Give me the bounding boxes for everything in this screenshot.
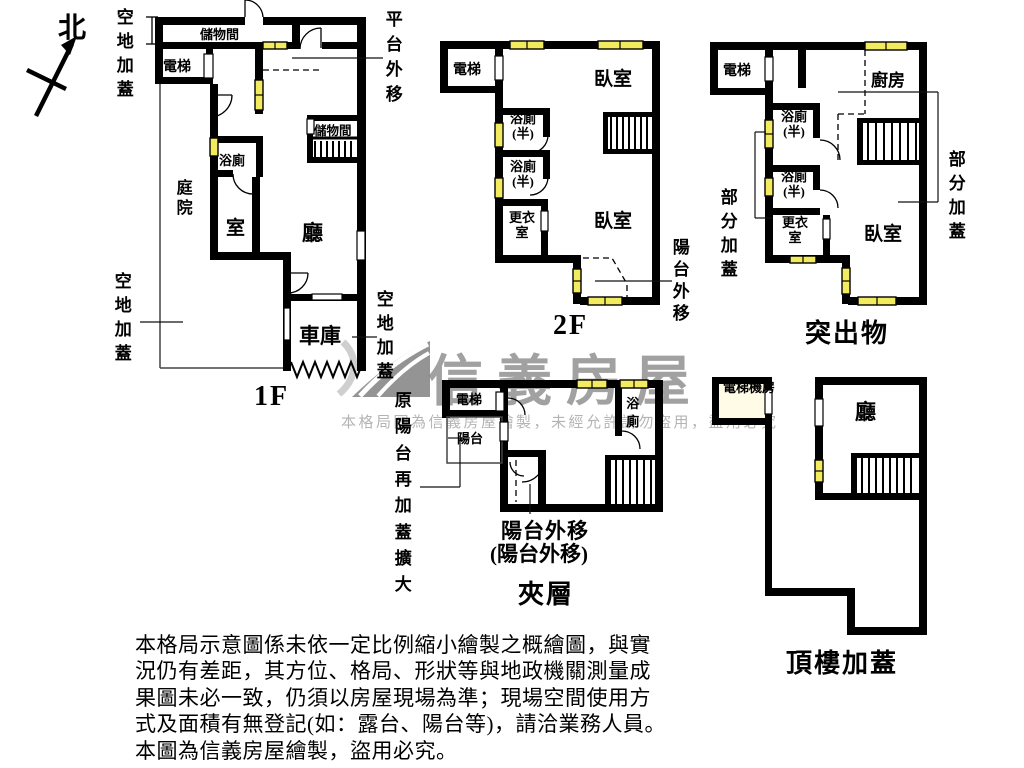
disclaimer-line: 況仍有差距，其方位、格局、形狀等與地政機關測量成 — [135, 658, 670, 684]
floorplan-2f — [440, 41, 672, 305]
plan-title-rooftop: 頂樓加蓋 — [786, 643, 898, 680]
annotation-original-balcony: 原陽台再加蓋擴大 — [393, 388, 413, 599]
disclaimer-text: 本格局示意圖係未依一定比例縮小繪製之概繪圖，與實 況仍有差距，其方位、格局、形狀… — [135, 632, 670, 764]
room-elevator-protrusion: 電梯 — [723, 60, 751, 80]
room-balcony: 陽台 — [457, 428, 483, 447]
floorplan-rooftop — [712, 377, 927, 635]
room-elevator-mezzanine: 電梯 — [456, 389, 482, 408]
plan-title-2f: 2F — [553, 310, 588, 342]
room-room-1f: 室 — [226, 213, 245, 240]
window-icon — [815, 460, 823, 482]
room-bath-half-1-2f: 浴廁(半) — [506, 112, 540, 141]
room-bath-1f: 浴廁 — [219, 150, 245, 169]
disclaimer-line: 本格局示意圖係未依一定比例縮小繪製之概繪圖，與實 — [135, 632, 670, 658]
room-storage-top: 儲物間 — [200, 24, 239, 43]
room-bath-half-2-protrusion: 浴廁(半) — [777, 170, 811, 199]
room-bath-half-2-2f: 浴廁(半) — [506, 160, 540, 189]
room-bath-half-1-protrusion: 浴廁(半) — [777, 110, 811, 139]
room-storage-right: 儲物間 — [314, 120, 352, 139]
room-bath-mezzanine: 浴廁 — [625, 395, 641, 430]
room-elevator-machine-room: 電梯機房 — [721, 381, 777, 396]
room-living-rooftop: 廳 — [855, 396, 876, 426]
room-bedroom-protrusion: 臥室 — [864, 219, 902, 246]
leader-line — [420, 438, 530, 514]
annotation-platform-out: 平台外移 — [384, 8, 404, 108]
disclaimer-line: 式及面積有無登記(如：露台、陽台等)，請洽業務人員。 — [135, 711, 670, 737]
annotation-open-land-left: 空地加蓋 — [113, 270, 133, 367]
plan-title-mezzanine: 夾層 — [518, 574, 574, 611]
annotation-partial-cover-right: 部分加蓋 — [947, 148, 967, 245]
room-closet-protrusion: 更衣室 — [780, 216, 810, 245]
annotation-open-land-top: 空地加蓋 — [115, 6, 135, 103]
room-elevator-1f: 電梯 — [163, 56, 191, 76]
door-arc-icon — [820, 140, 840, 208]
room-garage: 車庫 — [299, 320, 341, 350]
room-kitchen: 廚房 — [871, 66, 905, 91]
room-elevator-2f: 電梯 — [453, 59, 481, 79]
room-closet-2f: 更衣室 — [507, 211, 537, 240]
annotation-balcony-out-2f: 陽台外移 — [671, 237, 691, 325]
annotation-partial-cover-left: 部分加蓋 — [719, 186, 739, 283]
plan-title-protrusion: 突出物 — [805, 313, 889, 350]
room-bedroom-top: 臥室 — [594, 64, 632, 91]
annotation-open-land-right: 空地加蓋 — [375, 288, 395, 385]
floorplan-sheet: 信義房屋 本格局圖為信義房屋繪製，未經允許請勿盜用，盜用必究 — [0, 0, 1024, 768]
room-courtyard: 庭院 — [175, 179, 194, 219]
room-living-1f: 廳 — [302, 217, 323, 247]
disclaimer-line: 果圖未必一致，仍須以房屋現場為準；現場空間使用方 — [135, 685, 670, 711]
north-arrow-icon — [27, 36, 77, 116]
compass-north-label: 北 — [58, 6, 86, 46]
room-bedroom-bottom: 臥室 — [594, 206, 632, 233]
plan-title-1f: 1F — [254, 381, 289, 413]
annotation-balcony-out-2: (陽台外移) — [490, 538, 588, 568]
disclaimer-line: 本圖為信義房屋繪製，盜用必究。 — [135, 738, 670, 764]
